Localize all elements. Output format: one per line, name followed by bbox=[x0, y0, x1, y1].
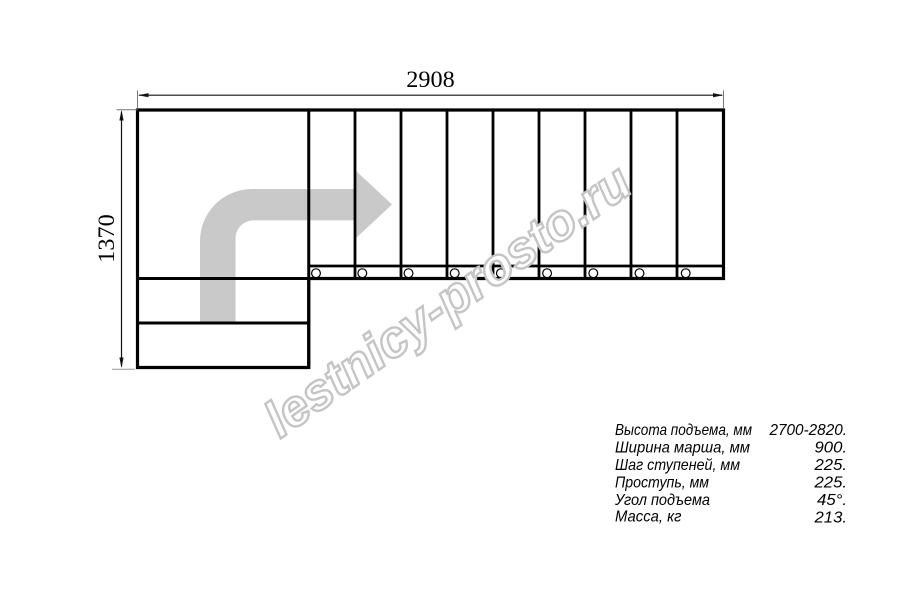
svg-text:2908: 2908 bbox=[406, 67, 455, 92]
svg-text:Ширина марша, мм: Ширина марша, мм bbox=[615, 440, 750, 457]
svg-text:Угол подъема: Угол подъема bbox=[614, 492, 710, 509]
svg-text:225.: 225. bbox=[813, 475, 847, 492]
svg-text:Высота подъема, мм: Высота подъема, мм bbox=[615, 422, 752, 439]
svg-text:Проступь, мм: Проступь, мм bbox=[615, 475, 709, 492]
svg-text:Масса, кг: Масса, кг bbox=[615, 509, 682, 526]
svg-text:45°.: 45°. bbox=[817, 492, 847, 509]
svg-text:900.: 900. bbox=[815, 440, 848, 457]
svg-text:1370: 1370 bbox=[94, 214, 119, 263]
svg-text:213.: 213. bbox=[813, 510, 847, 527]
svg-text:Шаг ступеней, мм: Шаг ступеней, мм bbox=[615, 457, 740, 474]
svg-text:2700-2820.: 2700-2820. bbox=[769, 422, 847, 439]
svg-text:225.: 225. bbox=[813, 457, 847, 474]
